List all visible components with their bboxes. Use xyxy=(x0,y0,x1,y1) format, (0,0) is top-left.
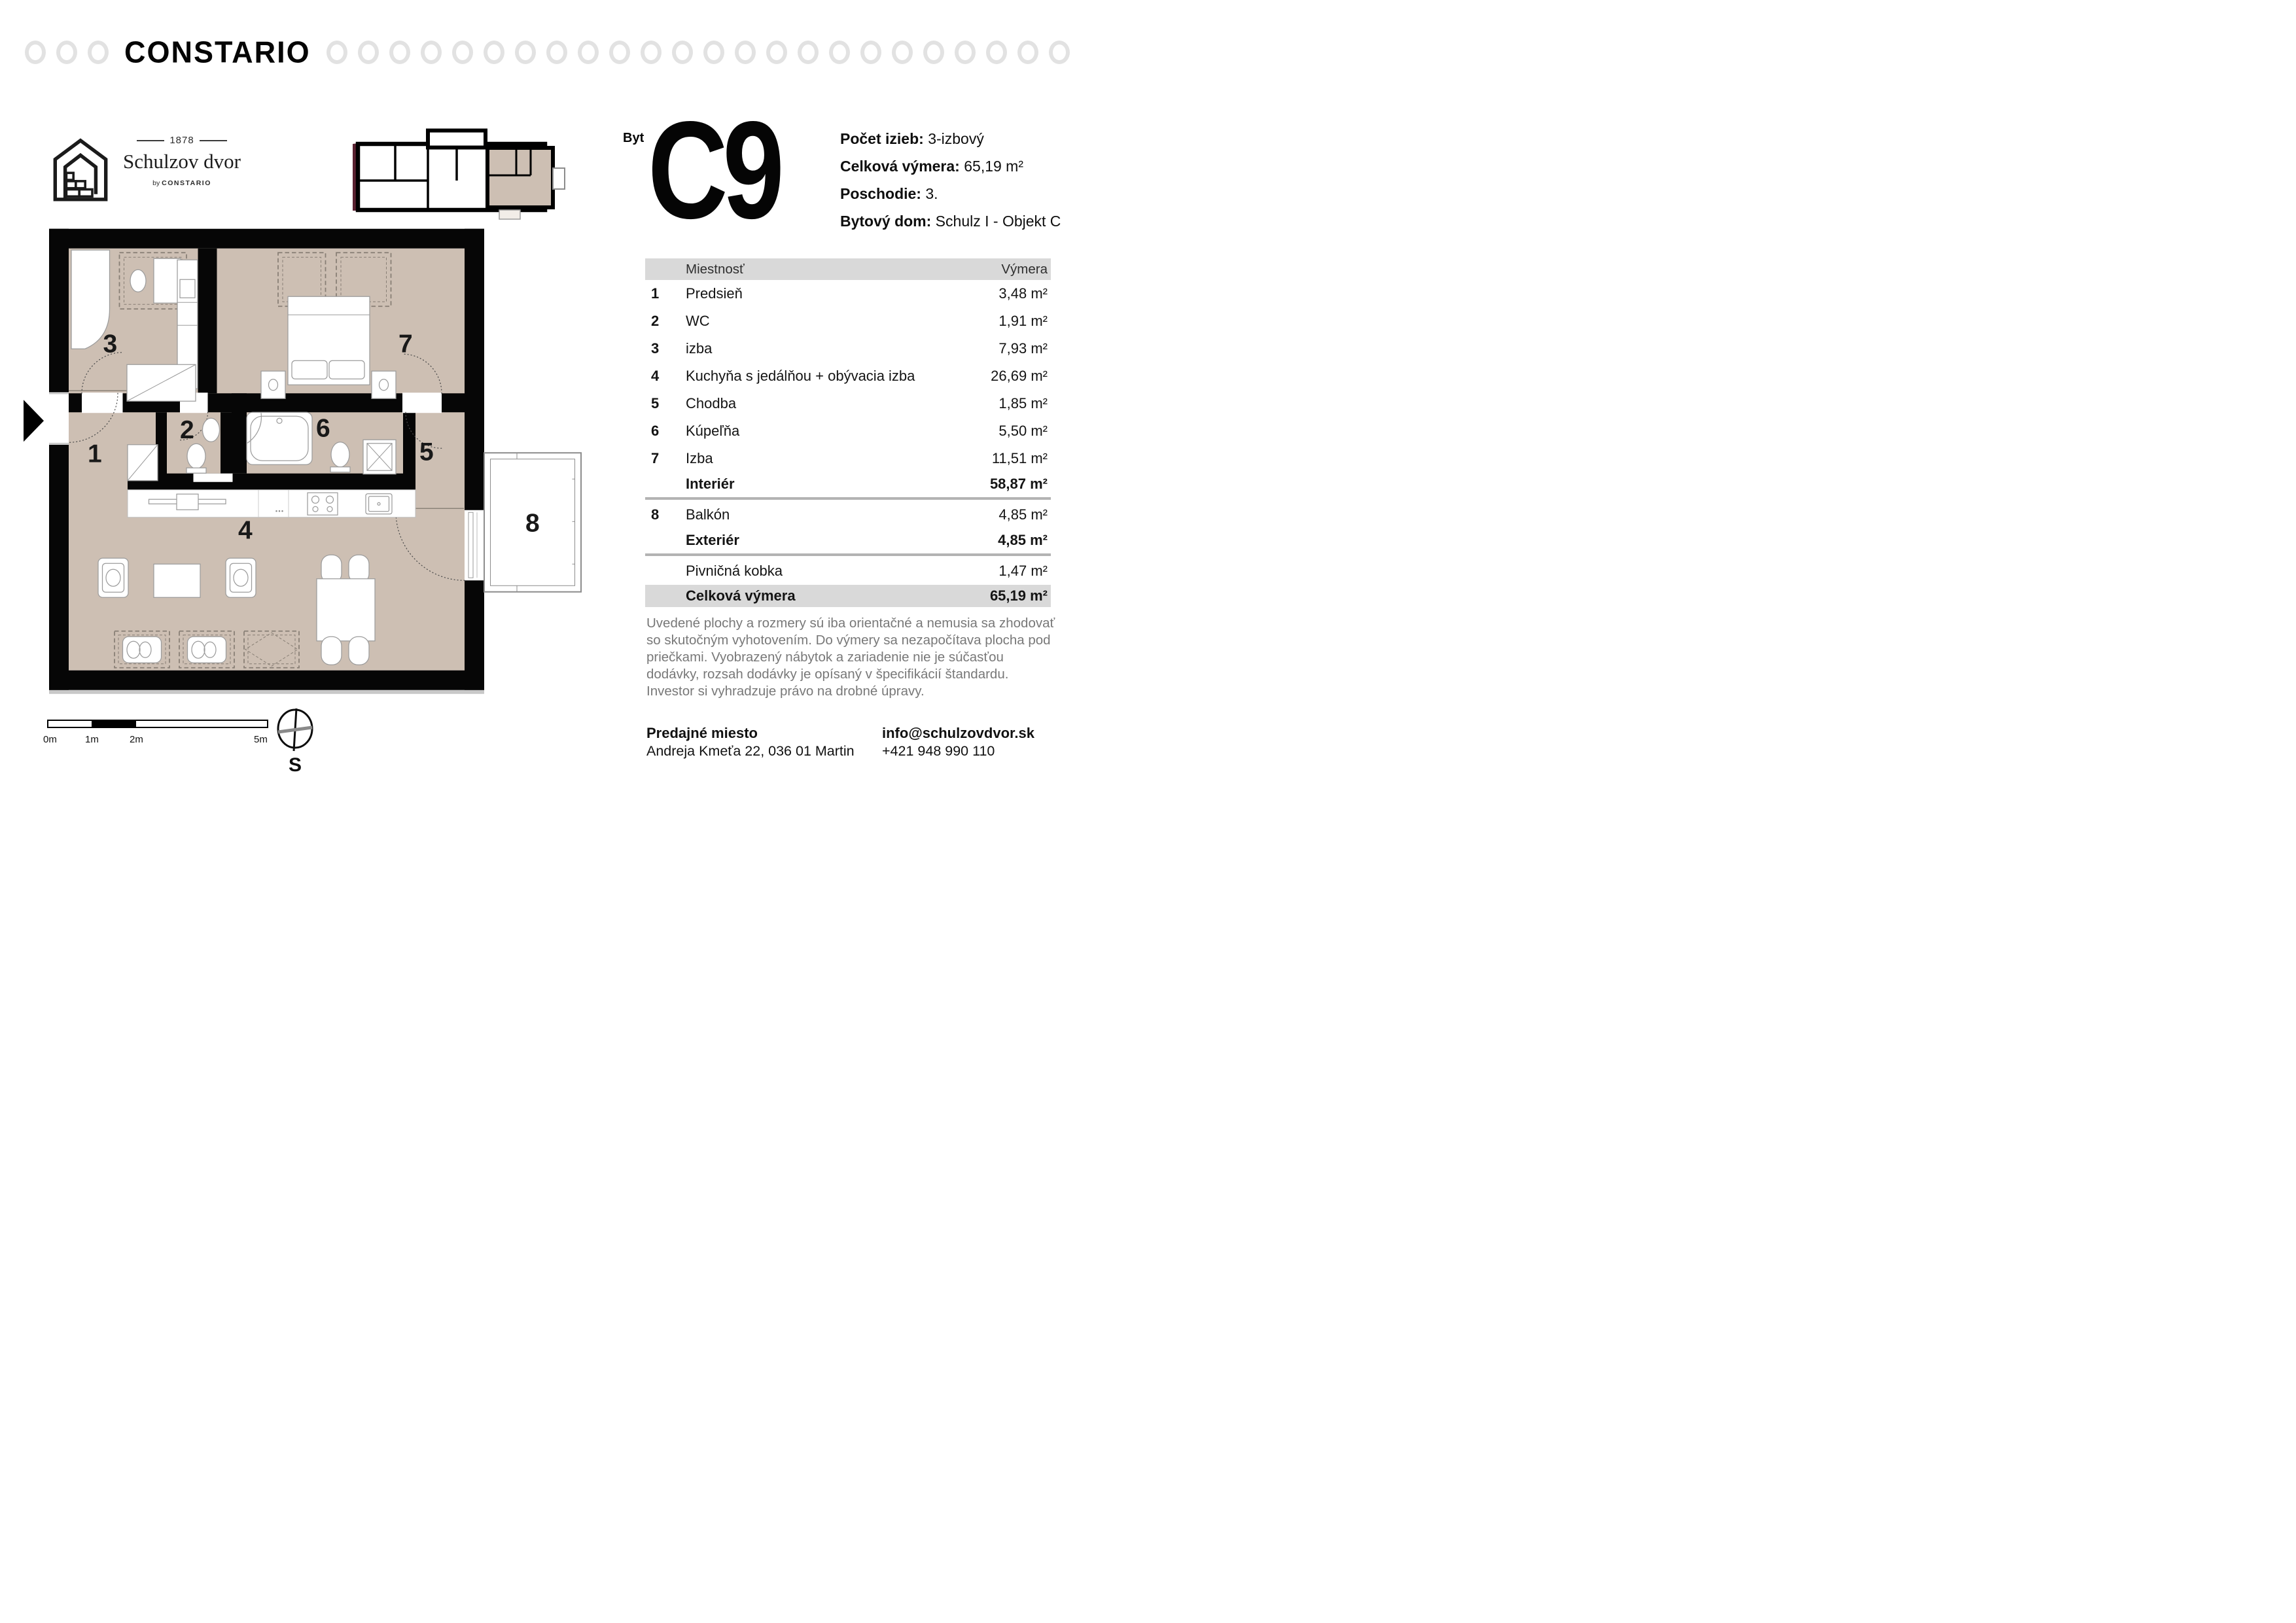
ring-ornament-right-19 xyxy=(923,41,944,64)
unit-detail-0: Počet izieb: 3-izbový xyxy=(840,130,1122,148)
table-subtotal-exterior-name: Exteriér xyxy=(686,532,998,549)
table-row-4-name: Kuchyňa s jedálňou + obývacia izba xyxy=(686,368,991,385)
room-label-8: 8 xyxy=(525,509,540,537)
unit-detail-label: Bytový dom: xyxy=(840,213,931,230)
unit-detail-label: Celková výmera: xyxy=(840,158,960,175)
disclaimer-text: Uvedené plochy a rozmery sú iba orientač… xyxy=(646,615,1084,700)
bathtub-icon xyxy=(247,412,312,464)
ring-ornament-right-3 xyxy=(421,41,442,64)
unit-detail-1: Celková výmera: 65,19 m² xyxy=(840,158,1122,175)
ring-ornament-right-18 xyxy=(892,41,913,64)
table-row-5: 5Chodba1,85 m² xyxy=(645,390,1051,417)
scale-label-0m: 0m xyxy=(43,734,57,745)
unit-detail-value: Schulz I - Objekt C xyxy=(931,213,1061,230)
table-total: Celková výmera65,19 m² xyxy=(645,585,1051,607)
table-row-1: 1Predsieň3,48 m² xyxy=(645,280,1051,307)
compass-south-label: S xyxy=(289,754,302,773)
plan-shadow xyxy=(49,690,484,694)
mirror-icon xyxy=(130,270,146,292)
table-row-4: 4Kuchyňa s jedálňou + obývacia izba26,69… xyxy=(645,362,1051,390)
ring-ornament-right-1 xyxy=(358,41,379,64)
table-row-3-area: 7,93 m² xyxy=(998,340,1051,357)
ring-ornament-right-12 xyxy=(703,41,724,64)
contact-phone: +421 948 990 110 xyxy=(882,743,995,759)
table-subtotal-exterior-area: 4,85 m² xyxy=(998,532,1051,549)
unit-details: Počet izieb: 3-izbovýCelková výmera: 65,… xyxy=(840,130,1122,240)
toilet-icon xyxy=(187,444,205,468)
miniplan-balcony xyxy=(553,168,565,189)
ring-ornament-right-8 xyxy=(578,41,599,64)
ring-ornament-right-17 xyxy=(860,41,881,64)
developer-logo: 1878 Schulzov dvor by CONSTARIO xyxy=(51,131,247,209)
table-row-5-area: 1,85 m² xyxy=(998,395,1051,412)
table-row-6-num: 6 xyxy=(645,423,686,440)
floor-overview-miniplan xyxy=(345,126,571,222)
ring-ornament-right-13 xyxy=(735,41,756,64)
ring-ornament-left-1 xyxy=(56,41,77,64)
unit-detail-label: Poschodie: xyxy=(840,185,921,202)
dash-right xyxy=(200,140,227,141)
table-row-7-area: 11,51 m² xyxy=(992,450,1051,467)
scale-label-1m: 1m xyxy=(85,734,99,745)
table-row-cellar: Pivničná kobka1,47 m² xyxy=(645,557,1051,585)
scale-bar xyxy=(47,720,268,728)
sales-point-label: Predajné miesto xyxy=(646,725,758,742)
ring-ornament-right-14 xyxy=(766,41,787,64)
table-row-2-name: WC xyxy=(686,313,998,330)
room-label-5: 5 xyxy=(419,438,434,466)
table-row-6-area: 5,50 m² xyxy=(998,423,1051,440)
unit-detail-3: Bytový dom: Schulz I - Objekt C xyxy=(840,213,1122,230)
table-subtotal-interior-name: Interiér xyxy=(686,476,990,493)
table-divider-1 xyxy=(645,497,1051,500)
pillow-icon xyxy=(329,360,364,379)
unit-detail-value: 65,19 m² xyxy=(960,158,1023,175)
toilet-icon xyxy=(331,442,349,467)
unit-code: C9 xyxy=(648,120,779,220)
table-total-area: 65,19 m² xyxy=(990,587,1051,604)
ring-ornament-right-9 xyxy=(609,41,630,64)
table-row-7: 7Izba11,51 m² xyxy=(645,445,1051,472)
ring-ornament-left-2 xyxy=(88,41,109,64)
table-header-room: Miestnosť xyxy=(686,262,1001,277)
logo-by-prefix: by xyxy=(152,179,160,187)
table-row-6: 6Kúpeľňa5,50 m² xyxy=(645,417,1051,445)
room-label-3: 3 xyxy=(103,330,118,358)
logo-by-brand: CONSTARIO xyxy=(162,179,211,187)
ring-ornament-right-6 xyxy=(515,41,536,64)
miniplan-lower-balcony xyxy=(499,210,520,219)
ring-ornament-right-20 xyxy=(955,41,976,64)
room1-furniture xyxy=(128,445,158,481)
nightstand-icon xyxy=(261,371,285,398)
unit-detail-value: 3. xyxy=(921,185,938,202)
table-row-1-area: 3,48 m² xyxy=(998,285,1051,302)
logo-year-value: 1878 xyxy=(169,135,194,146)
table-row-2-num: 2 xyxy=(645,313,686,330)
sales-point-address: Andreja Kmeťa 22, 036 01 Martin xyxy=(646,743,855,759)
unit-type-label: Byt xyxy=(623,131,644,146)
unit-detail-value: 3-izbový xyxy=(924,130,984,147)
entrance-arrow-icon xyxy=(24,400,44,442)
room-label-4: 4 xyxy=(238,516,253,544)
kitchen-counter xyxy=(128,490,415,517)
ring-ornament-right-10 xyxy=(641,41,662,64)
dash-left xyxy=(137,140,164,141)
ring-ornament-right-21 xyxy=(986,41,1007,64)
brochure-page: CONSTARIO 1878 Schulzov dvor xyxy=(0,0,1148,811)
compass-icon: S xyxy=(274,708,317,773)
table-row-2: 2WC1,91 m² xyxy=(645,307,1051,335)
table-row-1-name: Predsieň xyxy=(686,285,998,302)
ring-ornament-right-4 xyxy=(452,41,473,64)
logo-year: 1878 xyxy=(116,135,247,146)
logo-text: 1878 Schulzov dvor by CONSTARIO xyxy=(116,135,247,187)
pillow-icon xyxy=(292,360,327,379)
ring-ornament-right-23 xyxy=(1049,41,1070,64)
ring-ornament-right-11 xyxy=(672,41,693,64)
room-label-7: 7 xyxy=(398,330,413,358)
table-subtotal-interior: Interiér58,87 m² xyxy=(645,472,1051,496)
ring-ornament-right-7 xyxy=(546,41,567,64)
ring-ornament-right-0 xyxy=(327,41,347,64)
sink-icon xyxy=(203,418,220,442)
table-row-1-num: 1 xyxy=(645,285,686,302)
unit-detail-label: Počet izieb: xyxy=(840,130,924,147)
table-row-8-name: Balkón xyxy=(686,506,998,523)
table-divider-2 xyxy=(645,553,1051,556)
table-row-4-area: 26,69 m² xyxy=(991,368,1051,385)
logo-name: Schulzov dvor xyxy=(116,150,247,173)
floor-plan: 1 2 3 4 5 6 7 8 xyxy=(20,227,582,703)
logo-byline: by CONSTARIO xyxy=(116,179,247,187)
room-label-6: 6 xyxy=(316,414,330,442)
table-row-7-name: Izba xyxy=(686,450,992,467)
coffee-table-icon xyxy=(154,564,200,597)
table-row-3-num: 3 xyxy=(645,340,686,357)
miniplan-staircase xyxy=(428,131,486,148)
table-row-2-area: 1,91 m² xyxy=(998,313,1051,330)
table-row-3-name: izba xyxy=(686,340,998,357)
chair-icon xyxy=(349,637,369,665)
scale-label-2m: 2m xyxy=(130,734,143,745)
room-label-1: 1 xyxy=(88,440,102,468)
table-row-6-name: Kúpeľňa xyxy=(686,423,998,440)
ring-ornament-right-16 xyxy=(829,41,850,64)
unit-detail-2: Poschodie: 3. xyxy=(840,185,1122,203)
hob-icon xyxy=(308,493,338,515)
miniplan-unit-c9-highlight xyxy=(487,148,553,207)
table-row-5-num: 5 xyxy=(645,395,686,412)
ring-ornament-right-22 xyxy=(1017,41,1038,64)
house-icon xyxy=(51,135,110,203)
ring-ornament-right-15 xyxy=(798,41,819,64)
table-header-area: Výmera xyxy=(1001,262,1051,277)
brand-header: CONSTARIO xyxy=(25,38,1148,67)
table-row-7-num: 7 xyxy=(645,450,686,467)
nightstand-icon xyxy=(372,371,396,398)
contact-email: info@schulzovdvor.sk xyxy=(882,725,1034,742)
table-subtotal-interior-area: 58,87 m² xyxy=(990,476,1051,493)
table-header: Miestnosť Výmera xyxy=(645,258,1051,280)
scale-bar-segment xyxy=(92,721,136,727)
table-row-3: 3izba7,93 m² xyxy=(645,335,1051,362)
table-total-name: Celková výmera xyxy=(686,587,990,604)
table-row-4-num: 4 xyxy=(645,368,686,385)
ring-ornament-right-2 xyxy=(389,41,410,64)
table-row-5-name: Chodba xyxy=(686,395,998,412)
table-row-8-area: 4,85 m² xyxy=(998,506,1051,523)
table-subtotal-exterior: Exteriér4,85 m² xyxy=(645,529,1051,552)
chair-icon xyxy=(321,637,342,665)
areas-table: Miestnosť Výmera 1Predsieň3,48 m²2WC1,91… xyxy=(645,258,1051,607)
table-row-8: 8Balkón4,85 m² xyxy=(645,501,1051,529)
scale-label-5m: 5m xyxy=(254,734,268,745)
room-label-2: 2 xyxy=(180,416,194,444)
brand-logo: CONSTARIO xyxy=(124,38,311,67)
ring-ornament-right-5 xyxy=(484,41,504,64)
table-row-8-num: 8 xyxy=(645,506,686,523)
dining-table-icon xyxy=(317,579,375,641)
ring-ornament-left-0 xyxy=(25,41,46,64)
shelf-icon xyxy=(154,258,181,303)
table-row-cellar-name: Pivničná kobka xyxy=(686,563,998,580)
table-row-cellar-area: 1,47 m² xyxy=(998,563,1051,580)
